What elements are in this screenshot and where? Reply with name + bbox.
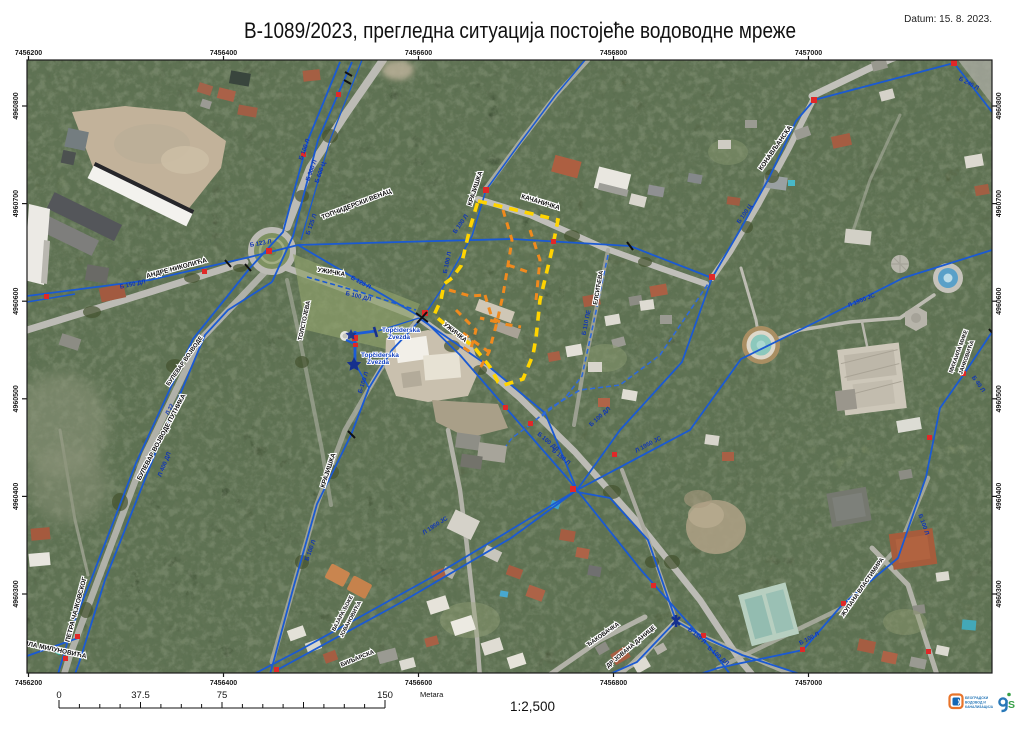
svg-text:В-1089/2023, прегледна ситуаци: В-1089/2023, прегледна ситуација постоје… (244, 18, 796, 43)
svg-text:0: 0 (56, 690, 61, 701)
svg-text:ВОДОВОД И: ВОДОВОД И (965, 701, 986, 705)
svg-text:4960800: 4960800 (996, 92, 1003, 119)
svg-text:7456200: 7456200 (15, 680, 42, 687)
svg-text:7456800: 7456800 (600, 680, 627, 687)
svg-text:37.5: 37.5 (131, 690, 150, 701)
svg-text:75: 75 (217, 690, 228, 701)
svg-text:4960500: 4960500 (996, 385, 1003, 412)
svg-text:БЕОГРАДСКИ: БЕОГРАДСКИ (965, 696, 989, 700)
svg-text:4960300: 4960300 (996, 580, 1003, 607)
svg-text:1:2,500: 1:2,500 (510, 699, 555, 714)
svg-text:Zvezda: Zvezda (367, 359, 389, 366)
svg-text:7457000: 7457000 (795, 50, 822, 57)
svg-text:7456600: 7456600 (405, 680, 432, 687)
svg-text:4960400: 4960400 (13, 483, 20, 510)
svg-text:S: S (1008, 699, 1015, 711)
svg-text:Metara: Metara (420, 690, 444, 699)
svg-text:4960400: 4960400 (996, 483, 1003, 510)
svg-text:Topčiderska: Topčiderska (382, 327, 420, 334)
svg-text:Topčiderska: Topčiderska (361, 352, 399, 359)
svg-text:4960300: 4960300 (13, 580, 20, 607)
svg-text:Datum: 15. 8. 2023.: Datum: 15. 8. 2023. (904, 14, 992, 25)
svg-text:4960800: 4960800 (13, 92, 20, 119)
svg-text:4960500: 4960500 (13, 385, 20, 412)
svg-text:4960600: 4960600 (996, 287, 1003, 314)
svg-text:4960700: 4960700 (13, 190, 20, 217)
svg-text:4960600: 4960600 (13, 287, 20, 314)
svg-text:7457000: 7457000 (795, 680, 822, 687)
svg-text:150: 150 (377, 690, 393, 701)
svg-text:7456400: 7456400 (210, 680, 237, 687)
svg-text:7456200: 7456200 (15, 50, 42, 57)
svg-text:7456800: 7456800 (600, 50, 627, 57)
svg-text:Zvezda: Zvezda (388, 334, 410, 341)
svg-text:4960700: 4960700 (996, 190, 1003, 217)
svg-text:КАНАЛИЗАЦИЈА: КАНАЛИЗАЦИЈА (965, 705, 994, 709)
svg-text:7456400: 7456400 (210, 50, 237, 57)
svg-text:7456600: 7456600 (405, 50, 432, 57)
